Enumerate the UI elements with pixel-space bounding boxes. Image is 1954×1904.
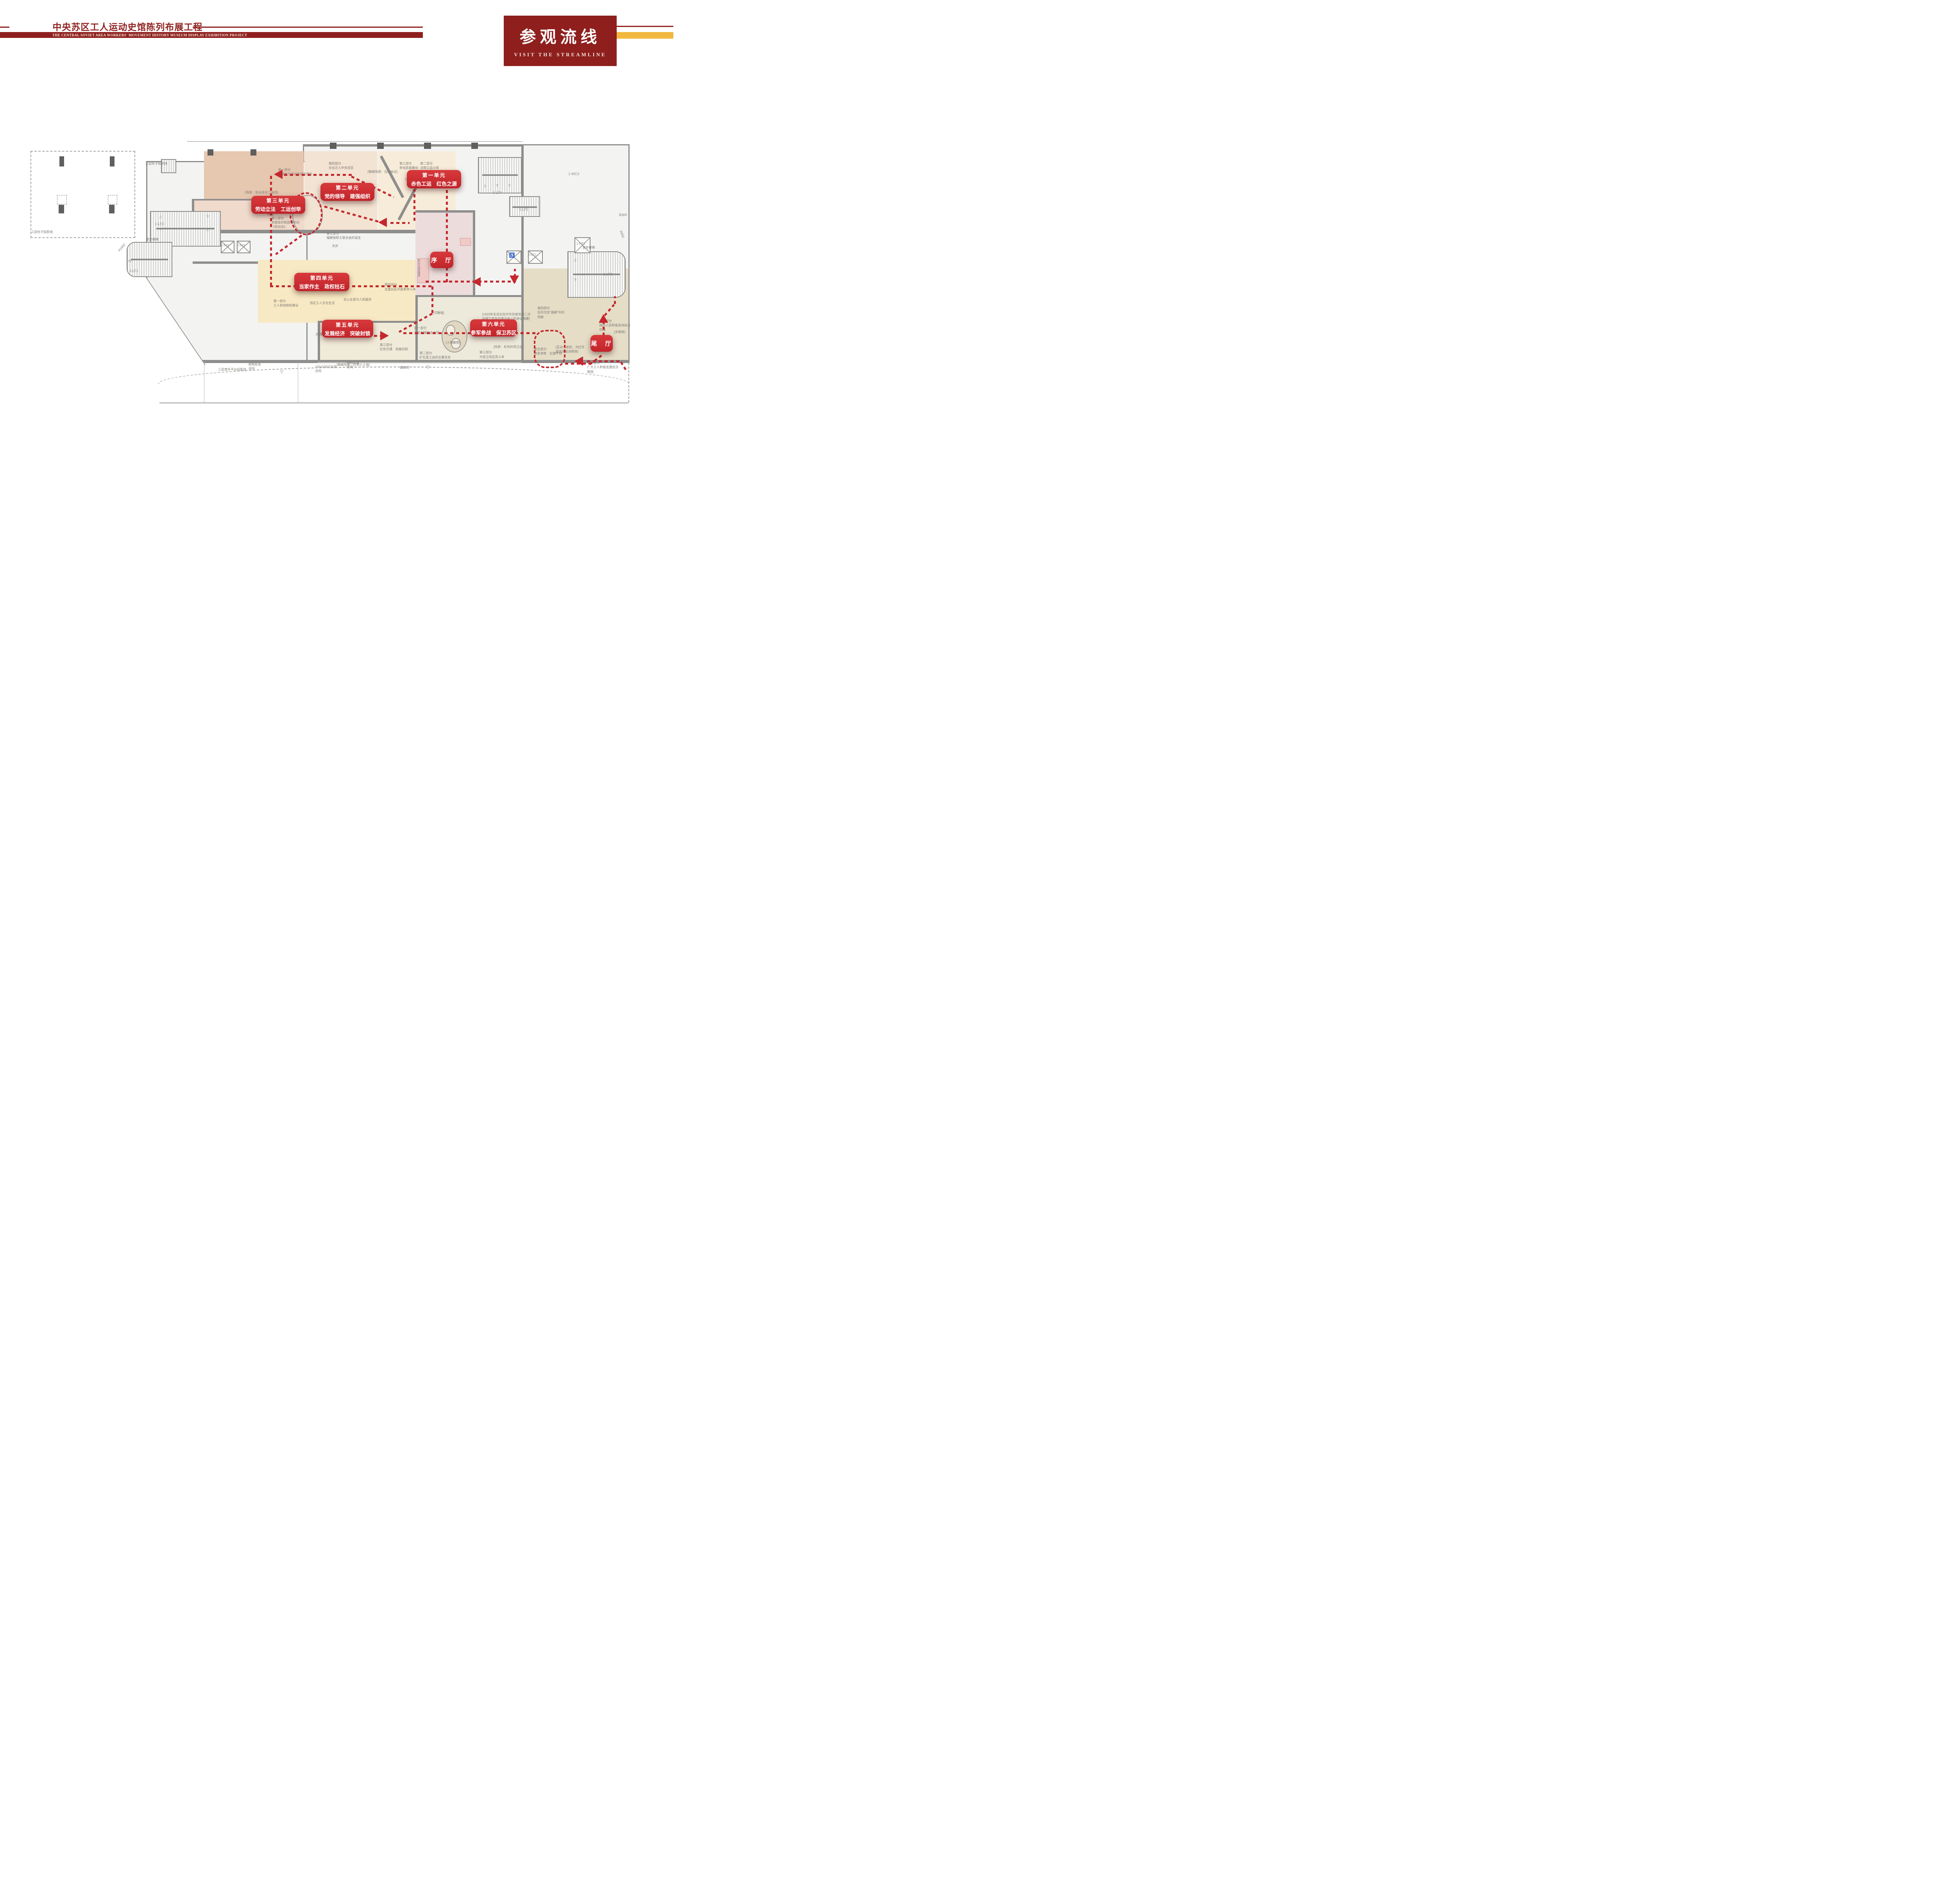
label-wc3: 1-WC3 [568, 172, 579, 176]
annotation: [陈云在闽西雕像] [417, 259, 420, 283]
annotation: 三层柱子投影线 [31, 230, 53, 234]
badge-unit4-theme: 当家作主 政权柱石 [299, 283, 345, 290]
label-dt3: 1-DT3 [238, 244, 245, 247]
wall-unit5-left [318, 321, 320, 362]
site-dashed-right [628, 363, 629, 403]
label-ht1: 1-HT1 [576, 242, 585, 245]
stair-rail [482, 174, 518, 176]
route-segment [426, 281, 516, 283]
pink-display-box [460, 238, 471, 246]
page-subtitle: THE CENTRAL SOVIET AREA WORKERS' MOVEMEN… [52, 33, 247, 37]
column-symbol [109, 205, 115, 213]
badge-unit1: 第一单元 赤色工运 红色之源 [407, 170, 462, 189]
badge-unit5-name: 第五单元 [336, 321, 359, 328]
annotation: 第四部分 在历次反“围剿”中的 贡献 [537, 306, 564, 319]
badge-unit1-theme: 赤色工运 红色之源 [411, 180, 457, 187]
badge-unit3: 第三单元 劳动立法 工运创举 [251, 196, 305, 214]
route-segment [446, 189, 448, 252]
column-dashed [108, 195, 117, 204]
section-title: 参观流线 [520, 24, 601, 48]
badge-unit1-name: 第一单元 [422, 171, 446, 179]
annotation: 清洁间 [619, 213, 627, 217]
annotation: 最高点 [400, 365, 409, 370]
route-arrow-left [574, 356, 583, 366]
header-rule-left [193, 27, 423, 28]
column-symbol [59, 156, 64, 167]
route-segment [284, 174, 352, 176]
header-rule-right [617, 26, 673, 27]
stair-up-label: 上 [483, 184, 487, 188]
stair-rail [131, 259, 168, 260]
elevator-dt1 [528, 251, 543, 264]
badge-unit2-theme: 党的领导 建强组织 [325, 192, 370, 200]
route-arrow-left [274, 170, 283, 179]
route-segment [413, 190, 415, 221]
header-gold-bar [617, 32, 673, 39]
section-title-box: 参观流线 VISIT THE STREAMLINE [504, 16, 617, 66]
annotation: 结构反梁 余同 [347, 361, 359, 369]
annotation: 第三部分 红色交通 突破封锁 [380, 343, 408, 351]
annotation: [多媒体] [614, 330, 625, 334]
annotation: 第三部分 福建省职工联合会的诞生 [327, 231, 361, 240]
badge-unit5-theme: 发展经济 突破封锁 [325, 329, 370, 337]
column [330, 143, 336, 149]
badge-unit2-name: 第二单元 [336, 184, 359, 191]
elevator-dt3 [237, 241, 250, 253]
stair-down-label: 下 [574, 278, 577, 282]
annotation: 三层室外平台投影线 [218, 367, 246, 372]
route-arrow-left [472, 277, 481, 286]
column [377, 143, 384, 149]
annotation: 75° [128, 259, 132, 263]
annotation: 100x100过水洞 余同 [315, 365, 336, 373]
page-title: 中央苏区工人运动史馆陈列布展工程 [52, 20, 202, 33]
route-segment [431, 286, 433, 313]
header-left-dash [0, 27, 9, 28]
label-lt4: 1-LT4 [493, 191, 502, 195]
column-symbol [110, 156, 115, 167]
stair-up-label: 上 [159, 215, 162, 219]
label-lt5: 1-LT5 [519, 208, 528, 211]
water-level-symbol: ▽ [426, 365, 429, 370]
annotation: 第三部分 参加武装暴动 [399, 161, 418, 170]
route-segment [390, 222, 409, 224]
annotation: [浮雕墙] [433, 311, 444, 315]
stair-down-label: 下 [496, 184, 499, 188]
badge-unit4: 第四单元 当家作主 政权柱石 [294, 273, 349, 292]
route-arrow-up [599, 314, 608, 323]
stair-up-label: 上 [206, 227, 209, 232]
column [424, 143, 431, 149]
annotation: 室外楼梯 [146, 237, 159, 242]
stair-down-label: 下 [508, 184, 511, 188]
annotation: [场景：松毛岭保卫战] [494, 345, 523, 349]
site-bottom-line [159, 403, 628, 403]
badge-epilogue: 尾 厅 [590, 335, 613, 352]
badge-unit6: 第六单元 参军参战 保卫苏区 [470, 319, 517, 336]
annotation: 三层柱子投影线 [145, 161, 167, 166]
route-loop-unit6 [534, 330, 565, 368]
grid-line-2 [298, 362, 298, 403]
column [251, 149, 257, 156]
section-subtitle: VISIT THE STREAMLINE [514, 52, 606, 58]
projection-area [30, 151, 136, 238]
label-lt2: 1-LT2 [603, 272, 612, 276]
badge-unit3-theme: 劳动立法 工运创举 [255, 205, 301, 213]
annotation: [微缩场景：古田会议] [368, 170, 397, 174]
badge-unit3-name: 第三单元 [267, 197, 290, 204]
route-arrow-down [510, 276, 519, 284]
wall-prologue-top [415, 210, 475, 212]
badge-prologue: 序 厅 [430, 252, 453, 268]
annotation: 苏区工人文化生活 [310, 301, 335, 305]
label-dt4: 1-DT4 [222, 244, 229, 247]
column [471, 143, 478, 149]
label-lt1: 1-LT1 [129, 269, 138, 273]
badge-unit2: 第二单元 党的领导 建强组织 [320, 183, 374, 201]
route-segment [587, 360, 621, 362]
route-arrow-right [380, 331, 389, 340]
water-level-symbol: ▽ [280, 369, 283, 375]
badge-unit6-theme: 参军参战 保卫苏区 [471, 329, 516, 336]
route-segment [270, 213, 272, 286]
annotation: 第一部分 工人参加政权建设 [274, 299, 299, 308]
header-maroon-bar: THE CENTRAL SOVIET AREA WORKERS' MOVEMEN… [0, 32, 423, 38]
label-dt2: 1-DT2 [506, 254, 514, 256]
annotation: R1900 [117, 243, 127, 252]
column-symbol [59, 205, 64, 213]
route-segment [603, 321, 605, 336]
column [208, 149, 214, 156]
annotation: 第二部分 扩红是工会的主要任务 [419, 351, 451, 360]
canopy-line [187, 141, 522, 142]
route-segment [446, 268, 448, 283]
sculpture-dot-1 [446, 325, 456, 336]
route-segment [270, 175, 272, 197]
label-lt3: 1-LT3 [155, 222, 164, 226]
badge-prologue-name: 序 厅 [431, 256, 452, 264]
stair-rail [573, 274, 620, 275]
column-dashed [57, 195, 66, 204]
route-segment [614, 296, 616, 304]
annotation: [人物雕塑] [446, 340, 460, 345]
annotation: 天井 [332, 244, 338, 248]
page-canvas: 中央苏区工人运动史馆陈列布展工程 THE CENTRAL SOVIET AREA… [0, 0, 673, 476]
stair-up-label: 上 [574, 258, 577, 262]
annotation: 全心全意为人民服务 [344, 297, 372, 302]
label-dt1: 1-DT1 [529, 254, 536, 256]
annotation: 结构反梁 余同 [249, 362, 261, 371]
badge-unit5: 第五单元 发展经济 突破封锁 [322, 320, 373, 337]
wall-left-row [193, 261, 258, 264]
elevator-dt4 [221, 241, 234, 253]
badge-unit6-name: 第六单元 [482, 320, 505, 327]
stair-down-label: 下 [206, 215, 209, 219]
badge-epilogue-name: 尾 厅 [591, 339, 612, 347]
annotation: 室外楼梯 [582, 245, 595, 250]
grid-line-1 [204, 362, 204, 403]
stair-down-label: 下 [159, 227, 162, 232]
annotation: 第三部分 为保卫苏区而斗争 [480, 350, 505, 359]
badge-unit4-name: 第四单元 [310, 274, 334, 281]
route-arrow-left [378, 218, 387, 227]
annotation: [场景：陈云在长汀指导] [245, 190, 278, 195]
annotation: 第四部分 全总迁入中央苏区 [329, 161, 354, 170]
stair-lt5 [509, 196, 540, 217]
annotation: 第二部分 点燃工运火炬 [420, 161, 439, 170]
